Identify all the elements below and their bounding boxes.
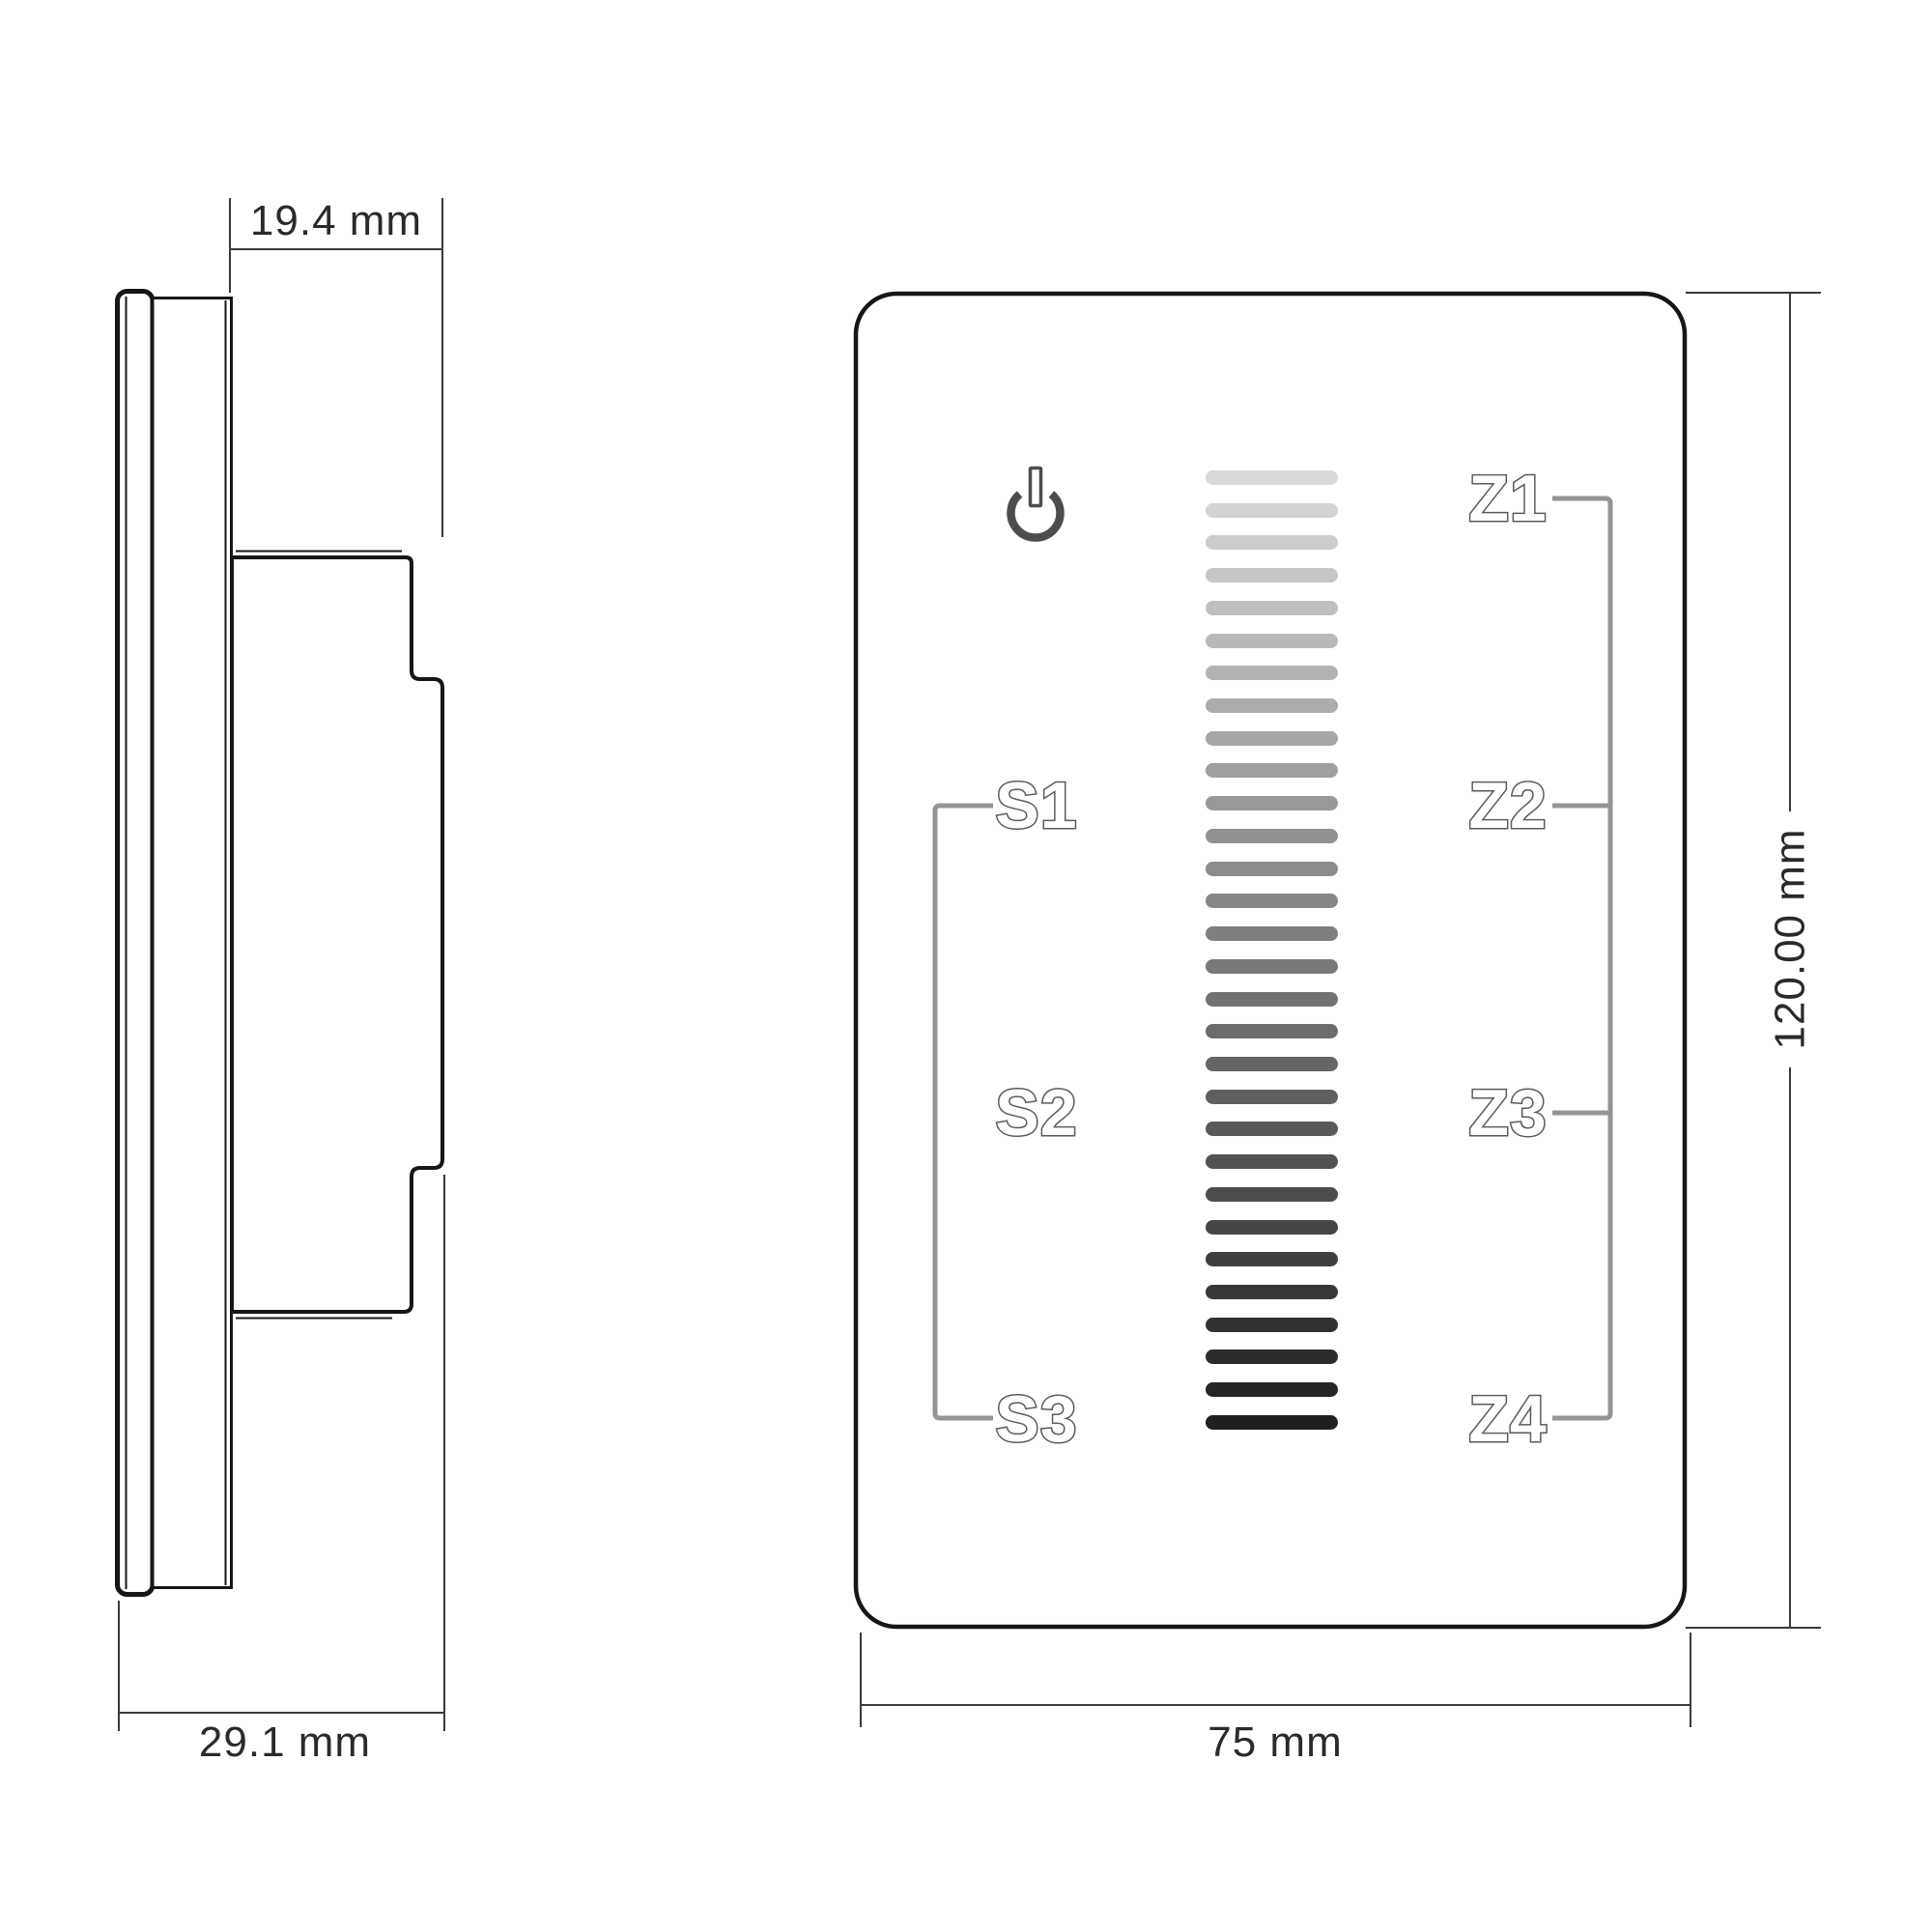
dimmer-bar[interactable] [1206,1382,1338,1397]
dimension-width: 75 mm [861,1633,1690,1766]
dimmer-bar[interactable] [1206,829,1338,843]
dimmer-bar[interactable] [1206,1154,1338,1169]
dimmer-bar[interactable] [1206,992,1338,1007]
scene-button-s3[interactable]: S3 [995,1382,1077,1456]
dimmer-bar[interactable] [1206,1057,1338,1071]
dimension-depth-front: 19.4 mm [230,197,442,537]
dimmer-bar[interactable] [1206,1187,1338,1202]
dimmer-bar[interactable] [1206,503,1338,518]
side-glass-plate [118,292,154,1595]
scene-button-s2[interactable]: S2 [995,1076,1077,1150]
zone-button-z2[interactable]: Z2 [1468,769,1547,842]
drawing-layer: 19.4 mm 29.1 mm S1 S2 S3 Z1 Z2 Z3 Z4 [0,0,1932,1932]
power-icon-bar [1031,469,1041,506]
zone-button-z1[interactable]: Z1 [1468,462,1547,535]
dimmer-bar[interactable] [1206,1318,1338,1332]
side-rear-box [232,557,442,1312]
dimmer-bar[interactable] [1206,1415,1338,1430]
dimmer-bar[interactable] [1206,796,1338,810]
dimension-text-width: 75 mm [1207,1719,1342,1766]
dimension-text-depth-total: 29.1 mm [199,1719,371,1766]
zone-button-z4[interactable]: Z4 [1468,1382,1547,1456]
dimension-text-height: 120.00 mm [1767,828,1814,1049]
dimmer-bar[interactable] [1206,763,1338,778]
dimension-text-depth-front: 19.4 mm [250,197,422,244]
dimmer-bar[interactable] [1206,470,1338,485]
dimmer-bar[interactable] [1206,1285,1338,1299]
dimmer-bar[interactable] [1206,926,1338,941]
dimmer-slider[interactable] [1206,470,1338,1430]
dimmer-bar[interactable] [1206,1350,1338,1364]
dimmer-bar[interactable] [1206,535,1338,550]
dimmer-bar[interactable] [1206,862,1338,876]
dimmer-bar[interactable] [1206,1024,1338,1038]
dimmer-bar[interactable] [1206,731,1338,746]
dimmer-bar[interactable] [1206,1122,1338,1136]
scene-button-s1[interactable]: S1 [995,769,1077,842]
dimmer-bar[interactable] [1206,568,1338,582]
dimmer-bar[interactable] [1206,601,1338,615]
dimmer-bar[interactable] [1206,894,1338,908]
zone-button-z3[interactable]: Z3 [1468,1076,1547,1150]
dimmer-bar[interactable] [1206,959,1338,974]
dimmer-bar[interactable] [1206,634,1338,648]
dimmer-bar[interactable] [1206,698,1338,713]
dimmer-bar[interactable] [1206,666,1338,680]
side-view [118,292,443,1595]
dimmer-bar[interactable] [1206,1220,1338,1235]
side-mounting-plate [153,298,232,1588]
dimmer-bar[interactable] [1206,1252,1338,1266]
technical-drawing-canvas: 19.4 mm 29.1 mm S1 S2 S3 Z1 Z2 Z3 Z4 [0,0,1932,1932]
dimmer-bar[interactable] [1206,1090,1338,1104]
dimension-height: 120.00 mm [1686,293,1821,1628]
